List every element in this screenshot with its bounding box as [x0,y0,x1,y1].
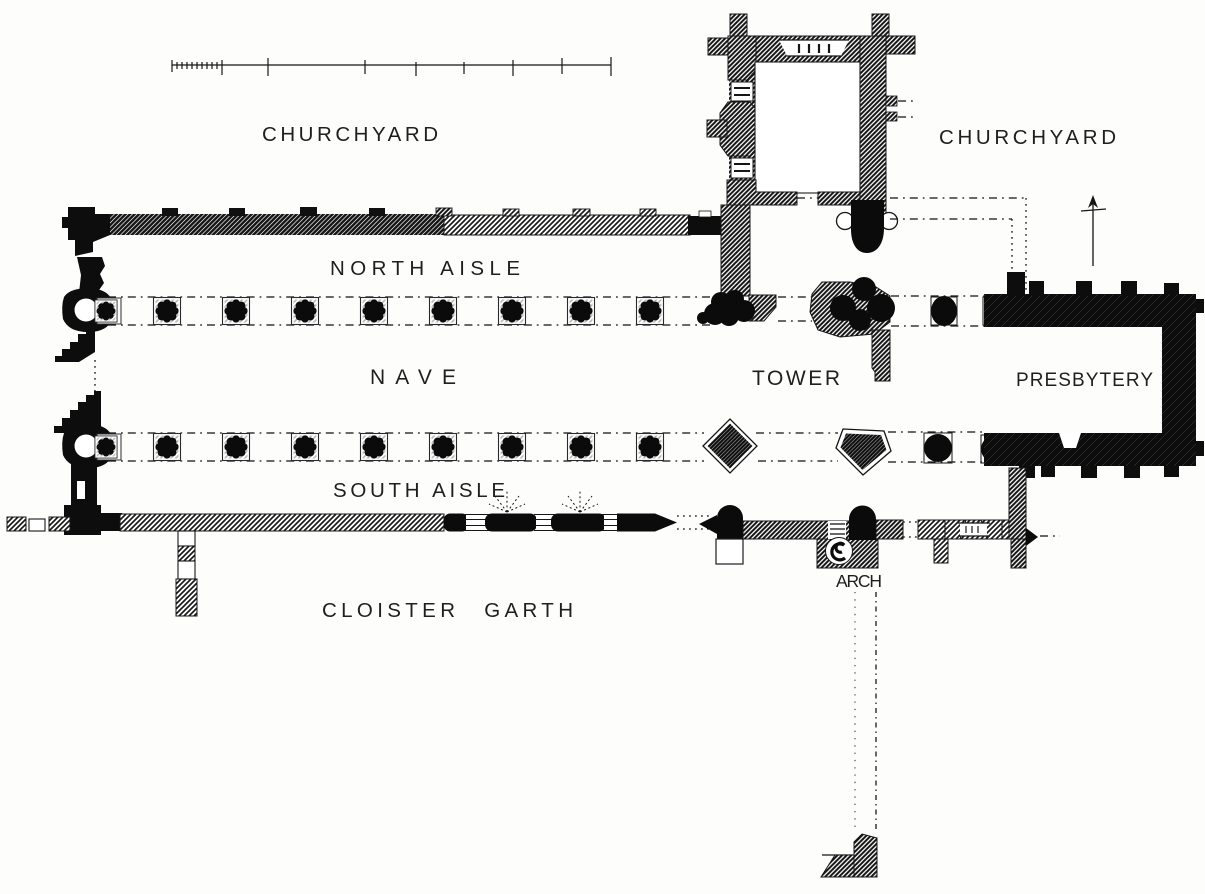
svg-text:CHURCHYARD: CHURCHYARD [939,126,1116,149]
svg-text:ARCH: ARCH [836,571,882,591]
svg-text:CLOISTER GARTH: CLOISTER GARTH [322,599,573,622]
svg-text:PRESBYTERY: PRESBYTERY [1016,370,1153,391]
svg-text:SOUTH AISLE: SOUTH AISLE [333,479,505,502]
svg-text:CHURCHYARD: CHURCHYARD [262,123,438,146]
